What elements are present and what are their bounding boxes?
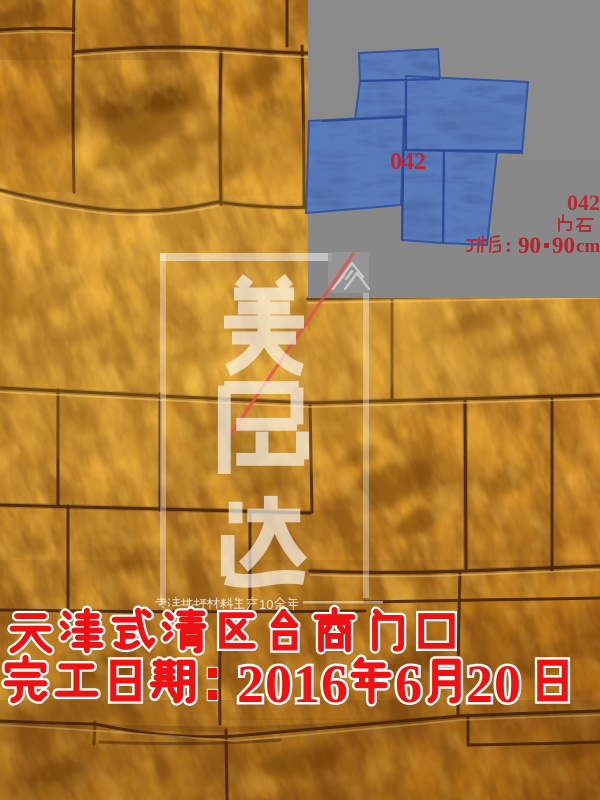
svg-text:042: 042 xyxy=(390,149,426,175)
svg-text:90: 90 xyxy=(518,233,541,258)
svg-text:90: 90 xyxy=(552,233,575,258)
svg-text:10: 10 xyxy=(259,597,273,612)
svg-text:cm: cm xyxy=(576,236,600,257)
svg-text::: : xyxy=(505,235,512,257)
svg-text:042: 042 xyxy=(567,190,600,215)
svg-text:2016: 2016 xyxy=(237,654,349,714)
svg-text:6: 6 xyxy=(395,654,422,714)
svg-text:20: 20 xyxy=(466,654,522,714)
